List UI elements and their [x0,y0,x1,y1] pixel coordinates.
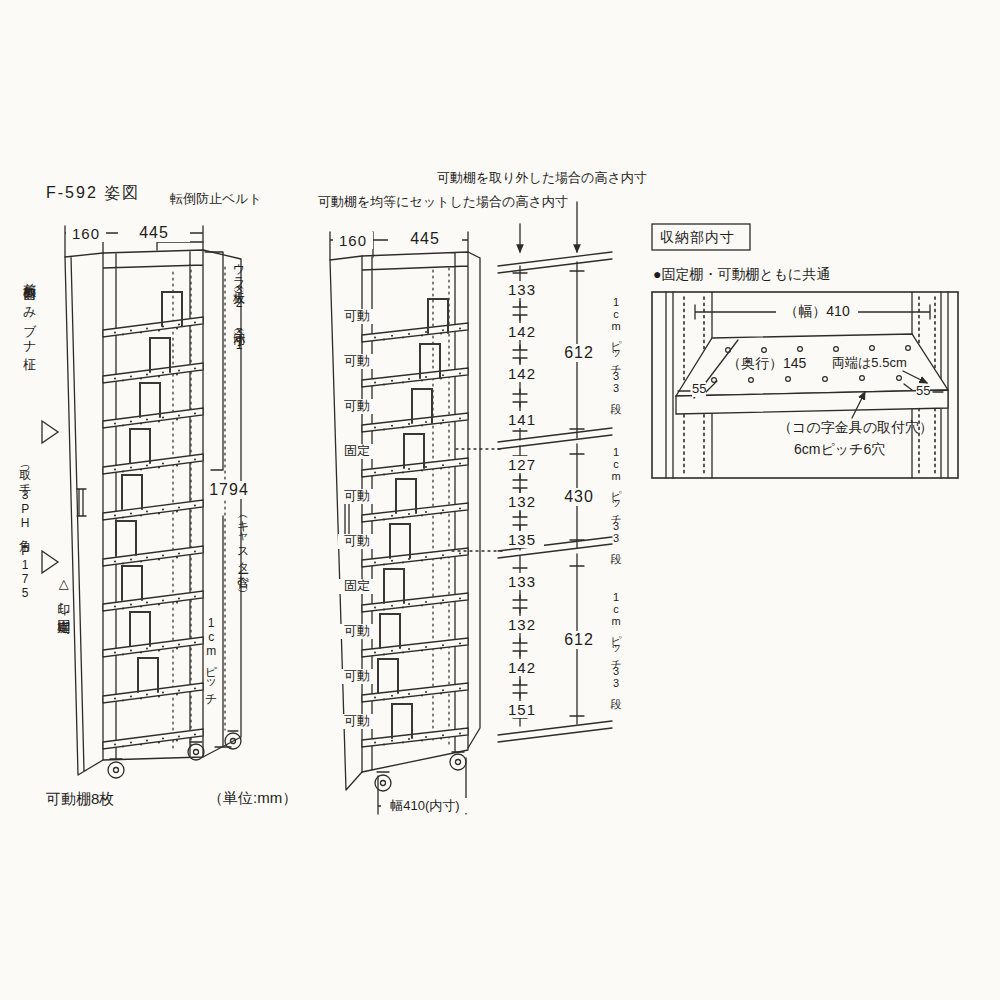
left-belt-strip [157,242,203,250]
unit-note: （単位:mm） [208,789,297,806]
detail-title: 収納部内寸 [660,229,735,245]
shelf-label-10: 可動 [338,714,376,729]
seg-2-1: 127 [500,456,544,473]
left-side-panel [65,253,103,775]
detail-55-left: 55 [692,382,706,397]
total-1: 612 [555,344,603,362]
drawing-title: F-592 姿図 [46,184,140,202]
total-3: 612 [555,631,603,649]
seg-1-1: 133 [500,281,544,298]
shelf-label-2: 可動 [338,354,376,369]
shelf-label-9: 可動 [338,669,376,684]
seg-3-3: 142 [500,659,544,676]
middle-dim-445: 445 [388,230,462,248]
left-dim-445: 445 [118,224,190,242]
detail-width-dim: （幅）410 [776,303,858,319]
seg-3-4: 151 [500,701,544,718]
shelf-label-1: 可動 [338,309,376,324]
handle-note: 取っ手 3PH角 P175 [18,460,31,600]
fixed-shelf-triangle-lower [42,551,58,573]
movable-count-note: 可動棚8枚 [46,790,114,807]
shelf-label-3: 可動 [338,399,376,414]
detail-holes-note-2: 6cmピッチ6穴 [794,441,885,457]
pitch-3: 1cmピッチ33段 [610,591,622,689]
middle-bottom-dim: 幅410(内寸) [381,798,469,813]
pitch-1: 1cmピッチ33段 [610,296,622,394]
pitch-2: 1cmピッチ33段 [610,446,622,544]
seg-1-4: 141 [500,411,544,428]
total-2: 430 [555,488,603,506]
detail-box-linework [652,224,958,478]
note-removed: 可動棚を取り外した場合の高さ内寸 [437,171,647,186]
shelf-label-5: 可動 [338,489,376,504]
back-panel-note: ウラ板（大）×2 同寸・（小）×1 [232,255,245,352]
note-equal: 可動棚を均等にセットした場合の高さ内寸 [318,195,568,210]
shelf-label-4: 固定 [338,444,376,459]
middle-dim-160: 160 [333,232,373,249]
seg-2-2: 132 [500,493,544,510]
shelf-label-7: 固定 [338,579,376,594]
detail-ends-note: 両端は5.5cm [832,356,907,371]
fixed-mark-note: △印し固定棚 [56,576,70,612]
detail-holes-note-1: （コの字金具の取付穴） [778,419,933,435]
shelf-label-6: 可動 [338,534,376,549]
seg-3-2: 132 [500,616,544,633]
front-board-note: 前板前面のみブナ柾 [22,272,36,349]
height-note: （キャスター含む） [236,512,249,581]
detail-subtitle: ●固定棚・可動棚ともに共通 [653,266,830,282]
middle-back-panel [468,252,480,748]
left-dim-160: 160 [66,225,106,242]
left-shelves [103,317,203,749]
left-bookends [116,292,182,692]
pitch-note: 1cmピッチ [204,616,217,699]
seg-3-1: 133 [500,573,544,590]
detail-55-right: 55 [916,384,930,399]
left-handle [77,489,86,516]
left-dim-1794: 1794 [204,481,254,499]
belt-note: 転倒防止ベルト [170,192,262,207]
seg-1-2: 142 [500,323,544,340]
shelf-label-8: 可動 [338,624,376,639]
f592-spec-diagram: F-592 姿図 転倒防止ベルト 160 445 前板前面のみブナ柾 取っ手 3… [0,0,1000,1000]
fixed-shelf-triangle-upper [42,421,58,443]
middle-side-panel [330,256,362,790]
seg-1-3: 142 [500,365,544,382]
middle-casters [375,752,466,791]
seg-2-3: 135 [500,531,544,548]
detail-depth-dim: （奥行）145 [727,355,806,371]
